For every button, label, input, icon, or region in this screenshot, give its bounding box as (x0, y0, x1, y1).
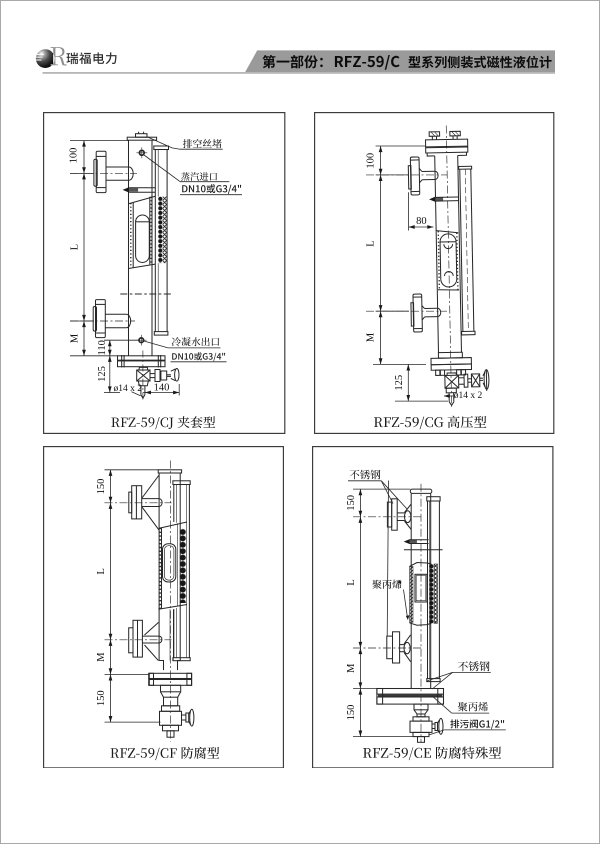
svg-text:125: 125 (97, 366, 108, 382)
svg-text:150: 150 (346, 495, 357, 511)
svg-text:ø14 x 2: ø14 x 2 (454, 391, 483, 401)
svg-text:L: L (96, 568, 107, 574)
svg-text:M: M (346, 662, 357, 672)
svg-text:M: M (70, 333, 81, 343)
svg-text:150: 150 (346, 704, 357, 720)
svg-text:100: 100 (69, 148, 80, 164)
svg-text:L: L (346, 579, 357, 585)
svg-text:L: L (365, 240, 376, 246)
svg-text:80: 80 (416, 216, 427, 227)
svg-text:L: L (70, 244, 81, 250)
svg-text:150: 150 (96, 478, 107, 494)
svg-text:140: 140 (154, 383, 170, 394)
svg-text:150: 150 (96, 690, 107, 706)
svg-text:M: M (365, 332, 376, 342)
svg-text:M: M (96, 651, 107, 661)
svg-text:100: 100 (365, 153, 376, 169)
svg-text:ø14 x 2: ø14 x 2 (114, 384, 143, 394)
svg-text:110: 110 (97, 340, 108, 355)
svg-text:125: 125 (394, 375, 405, 391)
